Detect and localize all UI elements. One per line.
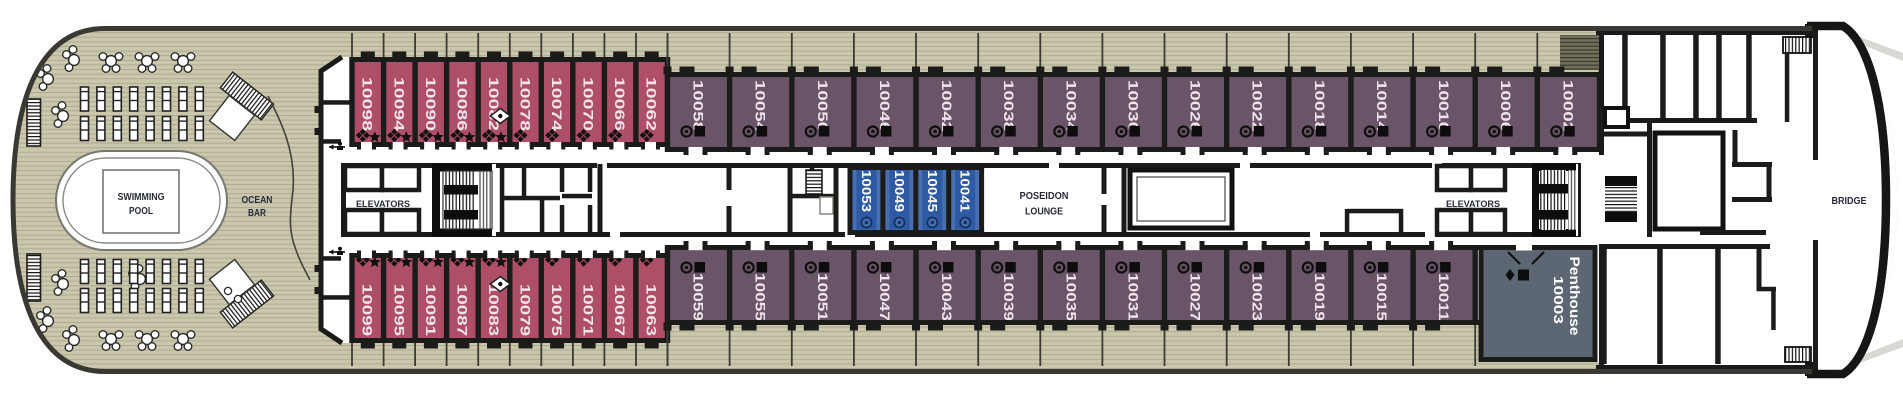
svg-text:10022: 10022	[1250, 80, 1266, 132]
svg-text:10066: 10066	[612, 77, 628, 131]
svg-text:10059: 10059	[691, 273, 707, 321]
svg-text:10083: 10083	[486, 284, 502, 336]
svg-text:10011: 10011	[1436, 273, 1452, 321]
svg-text:10098: 10098	[360, 77, 376, 131]
svg-text:10006: 10006	[1498, 80, 1514, 132]
svg-text:10026: 10026	[1188, 80, 1204, 132]
svg-text:10031: 10031	[1125, 273, 1141, 321]
svg-text:10070: 10070	[581, 77, 597, 131]
svg-text:Penthouse: Penthouse	[1567, 257, 1583, 336]
svg-text:BRIDGE: BRIDGE	[1832, 195, 1867, 207]
svg-text:10053: 10053	[859, 170, 873, 212]
svg-text:10034: 10034	[1063, 80, 1079, 132]
svg-text:10074: 10074	[549, 77, 565, 131]
svg-text:BAR: BAR	[248, 207, 266, 219]
svg-text:10043: 10043	[939, 273, 955, 321]
svg-text:POOL: POOL	[129, 205, 153, 217]
svg-text:10055: 10055	[753, 273, 769, 321]
svg-text:10051: 10051	[815, 273, 831, 321]
svg-text:POSEIDON: POSEIDON	[1020, 190, 1069, 202]
svg-text:10041: 10041	[958, 170, 972, 212]
svg-text:10015: 10015	[1374, 273, 1390, 321]
svg-text:10046: 10046	[877, 80, 893, 132]
svg-text:10062: 10062	[644, 77, 660, 131]
svg-text:ELEVATORS: ELEVATORS	[1446, 199, 1500, 210]
svg-text:10035: 10035	[1063, 273, 1079, 321]
svg-text:10030: 10030	[1125, 80, 1141, 132]
svg-text:10014: 10014	[1374, 80, 1390, 132]
svg-text:10027: 10027	[1188, 273, 1204, 321]
svg-text:10075: 10075	[549, 284, 565, 336]
svg-text:10019: 10019	[1312, 273, 1328, 321]
svg-text:10023: 10023	[1250, 273, 1266, 321]
svg-text:10095: 10095	[391, 284, 407, 336]
svg-text:10091: 10091	[423, 284, 439, 336]
svg-text:ELEVATORS: ELEVATORS	[356, 199, 410, 210]
svg-text:SWIMMING: SWIMMING	[118, 191, 165, 203]
svg-text:10079: 10079	[518, 284, 534, 336]
svg-text:10045: 10045	[925, 170, 939, 212]
svg-text:10042: 10042	[939, 80, 955, 132]
svg-text:10086: 10086	[454, 77, 470, 131]
svg-text:10063: 10063	[644, 284, 660, 336]
svg-text:10050: 10050	[815, 80, 831, 132]
svg-text:10003: 10003	[1551, 276, 1566, 324]
svg-text:10049: 10049	[892, 170, 906, 212]
svg-text:10054: 10054	[753, 80, 769, 132]
svg-text:10087: 10087	[454, 284, 470, 336]
svg-text:10071: 10071	[581, 284, 597, 336]
svg-text:10099: 10099	[360, 284, 376, 336]
svg-text:10094: 10094	[391, 77, 407, 131]
svg-text:10039: 10039	[1001, 273, 1017, 321]
svg-text:10067: 10067	[612, 284, 628, 336]
svg-text:10058: 10058	[691, 80, 707, 132]
svg-text:10002: 10002	[1560, 80, 1576, 132]
svg-text:10010: 10010	[1436, 80, 1452, 132]
svg-text:OCEAN: OCEAN	[242, 194, 273, 206]
svg-text:LOUNGE: LOUNGE	[1025, 206, 1063, 218]
svg-text:10090: 10090	[423, 77, 439, 131]
svg-text:10078: 10078	[518, 77, 534, 131]
svg-text:10038: 10038	[1001, 80, 1017, 132]
svg-text:10018: 10018	[1312, 80, 1328, 132]
svg-text:10047: 10047	[877, 273, 893, 321]
